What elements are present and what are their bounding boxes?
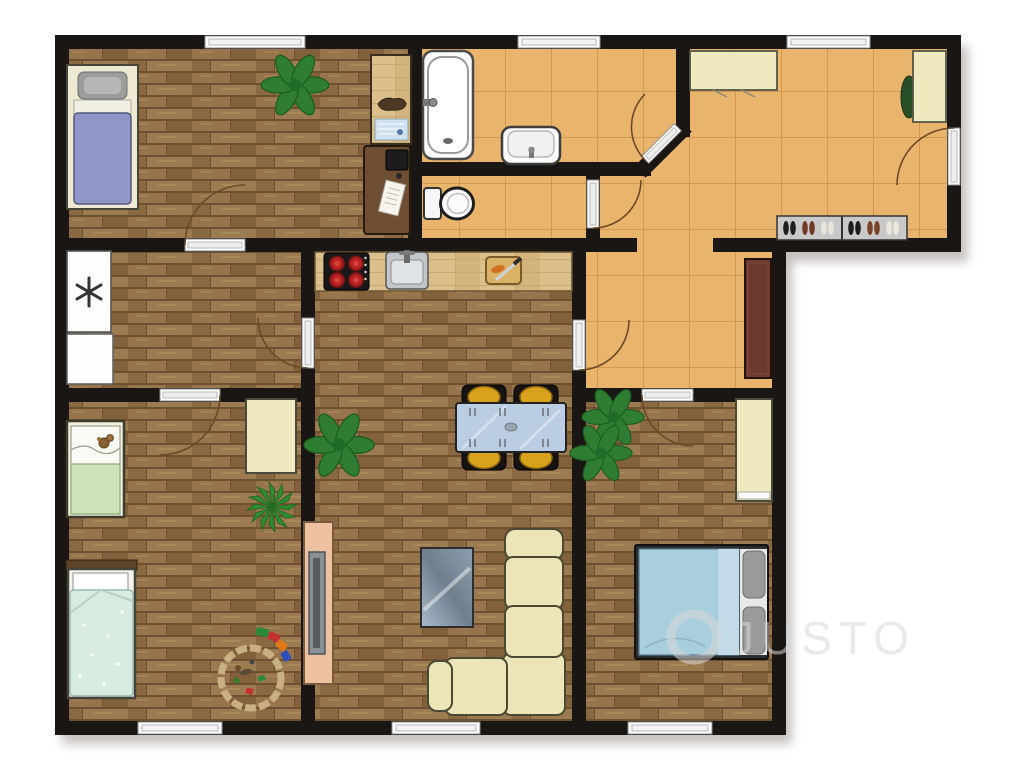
kids-bed-green: [67, 421, 124, 517]
white-appliance: [67, 334, 113, 384]
light-desk: [371, 55, 411, 144]
wall-h-bedroom1-bottom: [55, 238, 637, 252]
runner-rug: [745, 259, 771, 378]
bed-sheet-fold: [74, 100, 131, 114]
tv-sideboard: [304, 522, 333, 684]
bedroom2-wardrobe: [736, 399, 772, 501]
kitchen-counter: [315, 250, 572, 291]
bed-blanket: [74, 113, 131, 204]
computer-monitor: [386, 150, 408, 170]
bed-pillow-top: [743, 551, 765, 598]
wall-v-center-right: [572, 238, 586, 735]
window-living-room: [392, 722, 480, 734]
mouse: [396, 173, 402, 179]
green-blanket: [71, 464, 120, 514]
fridge-freezer: [67, 251, 111, 332]
kids-wardrobe: [246, 399, 296, 473]
stove: [324, 253, 369, 290]
tub-drain: [443, 138, 453, 144]
window-hall: [787, 36, 870, 48]
bathtub: [423, 51, 473, 159]
dark-desk: [364, 146, 410, 234]
wash-basin: [502, 127, 560, 164]
hall-cabinet-right: [913, 51, 946, 122]
shoe-rack: [777, 216, 907, 240]
window-bedroom2: [628, 722, 712, 734]
floor-plan-canvas: JUSTO: [0, 0, 1023, 767]
room-storage: [67, 251, 113, 384]
toilet: [424, 188, 474, 219]
single-bed: [67, 65, 138, 209]
window-bathroom: [518, 36, 600, 48]
kitchen-sink: [386, 250, 428, 289]
window-bedroom1: [205, 36, 305, 48]
cutting-board: [486, 257, 521, 284]
glass-coffee-table: [421, 548, 473, 627]
window-kids-room: [138, 722, 222, 734]
room-lower-hallway: [745, 259, 771, 378]
kids-bed-mint: [66, 560, 137, 698]
hall-cabinet-top: [690, 51, 777, 97]
room-wc: [424, 188, 474, 219]
clothes-pile: [378, 98, 406, 110]
watermark-text: JUSTO: [731, 612, 916, 664]
floor-plan-svg: JUSTO: [0, 0, 1023, 767]
